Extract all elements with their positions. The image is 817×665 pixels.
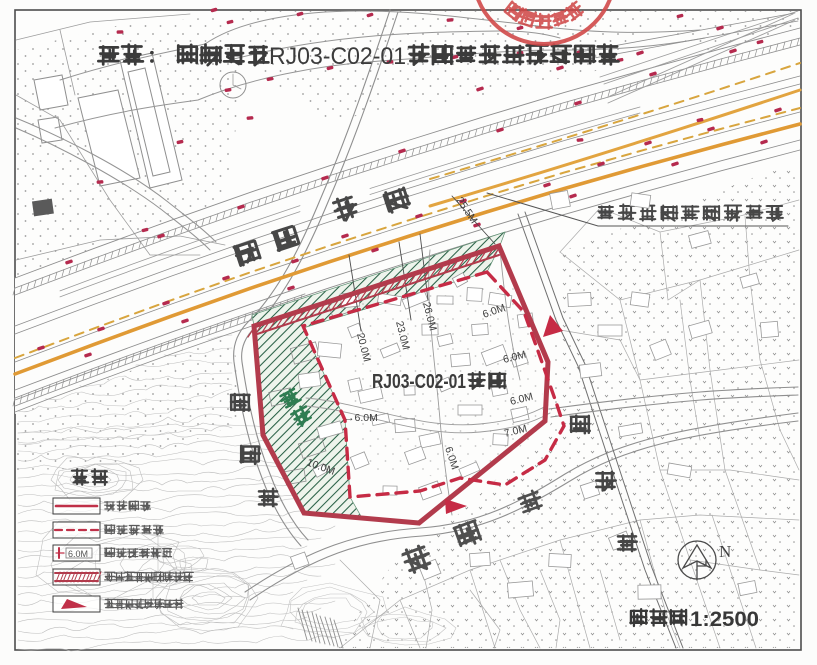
svg-text:RJ03-C02-01: RJ03-C02-01 [269, 43, 406, 70]
svg-text:RJ03-C02-01: RJ03-C02-01 [372, 371, 466, 393]
svg-text:1:2500: 1:2500 [690, 608, 759, 631]
svg-text:6.0M: 6.0M [68, 549, 88, 559]
svg-text:→6.0M: →6.0M [344, 412, 378, 424]
svg-text:N: N [719, 542, 731, 561]
